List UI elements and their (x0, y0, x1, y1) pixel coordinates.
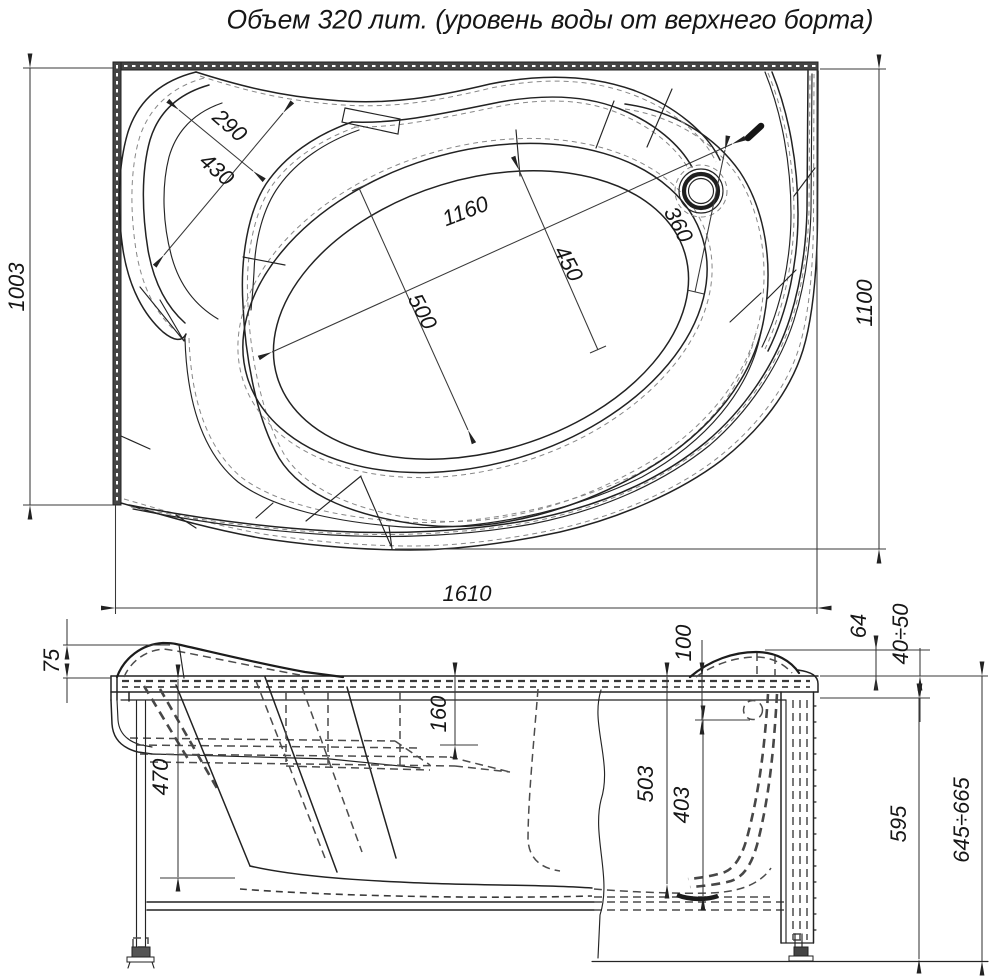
svg-text:1610: 1610 (443, 581, 493, 606)
svg-text:Объем 320 лит. (уровень воды о: Объем 320 лит. (уровень воды от верхнего… (227, 5, 874, 35)
svg-text:64: 64 (846, 614, 871, 638)
svg-text:160: 160 (426, 695, 451, 732)
svg-text:40÷50: 40÷50 (888, 603, 913, 665)
svg-text:595: 595 (886, 805, 911, 842)
svg-text:403: 403 (669, 786, 694, 823)
svg-text:470: 470 (148, 758, 173, 795)
svg-text:1003: 1003 (4, 262, 29, 312)
svg-text:645÷665: 645÷665 (949, 776, 974, 862)
svg-text:503: 503 (633, 765, 658, 802)
svg-text:100: 100 (671, 624, 696, 661)
svg-text:1100: 1100 (852, 279, 877, 327)
svg-text:75: 75 (39, 648, 64, 673)
